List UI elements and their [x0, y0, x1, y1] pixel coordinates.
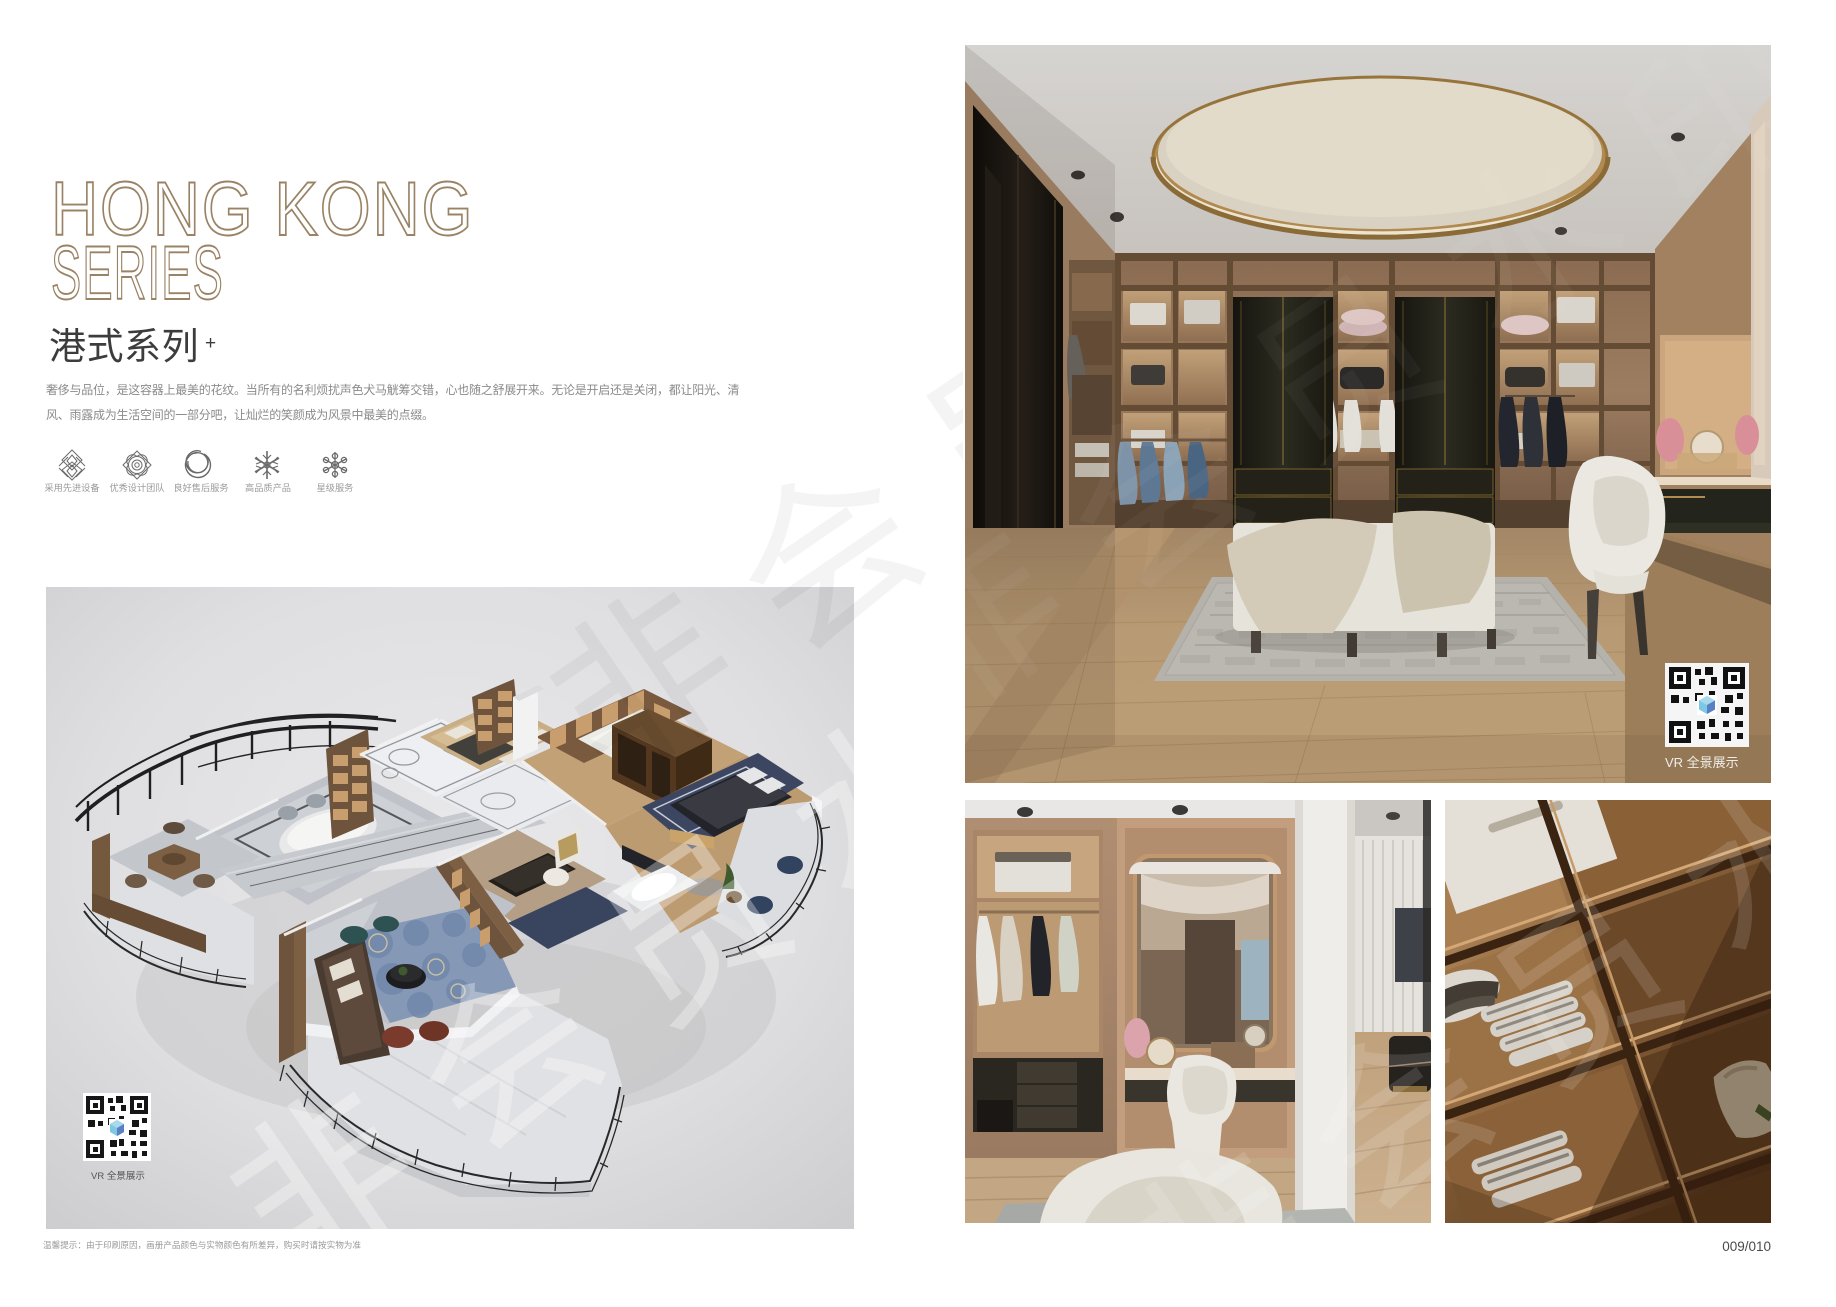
svg-text:良好售后服务: 良好售后服务	[173, 482, 228, 493]
svg-text:高品质产品: 高品质产品	[245, 482, 291, 493]
svg-text:VR 全景展示: VR 全景展示	[91, 1170, 145, 1182]
svg-text:采用先进设备: 采用先进设备	[44, 482, 99, 493]
svg-text:VR 全景展示: VR 全景展示	[1665, 755, 1739, 770]
svg-text:优秀设计团队: 优秀设计团队	[109, 482, 164, 493]
svg-text:星级服务: 星级服务	[317, 482, 354, 493]
